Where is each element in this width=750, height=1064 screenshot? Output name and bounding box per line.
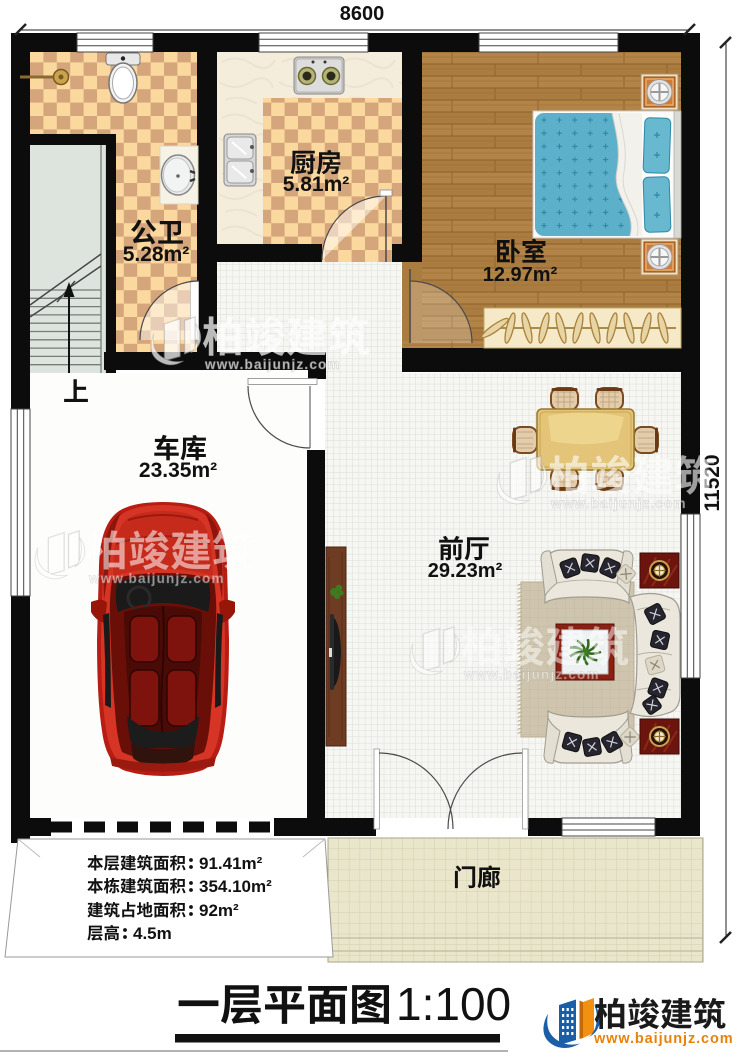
- svg-text:www.baijunjz.com: www.baijunjz.com: [593, 1031, 734, 1047]
- svg-text:12.97m²: 12.97m²: [483, 264, 558, 286]
- svg-text:4.5m: 4.5m: [133, 924, 172, 943]
- svg-text:91.41m²: 91.41m²: [199, 854, 263, 873]
- svg-text:1:100: 1:100: [396, 978, 511, 1030]
- svg-text:23.35m²: 23.35m²: [139, 459, 217, 482]
- svg-text:5.81m²: 5.81m²: [283, 173, 350, 196]
- svg-text:5.28m²: 5.28m²: [123, 243, 190, 266]
- svg-text:92m²: 92m²: [199, 901, 239, 920]
- svg-text:29.23m²: 29.23m²: [428, 560, 503, 582]
- svg-text:354.10m²: 354.10m²: [199, 877, 272, 896]
- svg-text:8600: 8600: [340, 3, 385, 25]
